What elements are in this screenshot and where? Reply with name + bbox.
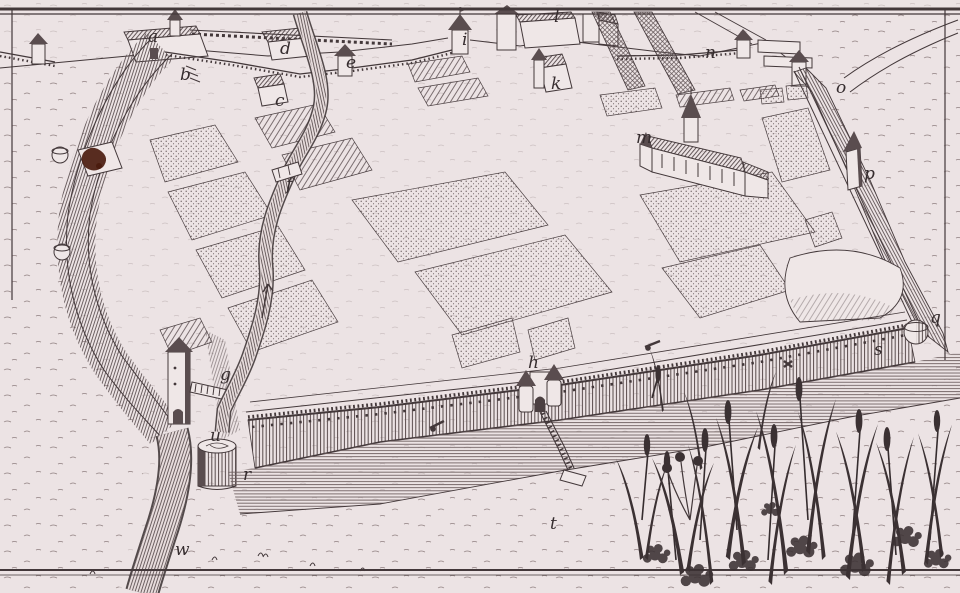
map-label-h: h xyxy=(528,353,539,373)
tall-watchtower xyxy=(165,337,193,424)
map-label-p: p xyxy=(864,164,875,184)
map-label-q: q xyxy=(930,308,941,328)
map-label-e: e xyxy=(346,53,356,73)
outwork-tower xyxy=(32,44,45,64)
map-label-l: l xyxy=(554,7,559,27)
engraving-page: abcdefghiklmnopqrstuw xyxy=(0,0,960,593)
map-label-r: r xyxy=(243,465,252,485)
map-label-a: a xyxy=(148,27,158,47)
map-label-i: i xyxy=(462,30,467,50)
birds-eye-map: abcdefghiklmnopqrstuw xyxy=(0,0,960,593)
map-label-t: t xyxy=(550,514,557,534)
map-label-w: w xyxy=(175,540,190,560)
west-bastion-tower xyxy=(52,147,68,163)
garden-plot xyxy=(786,84,808,100)
map-label-b: b xyxy=(180,65,191,85)
gatehouse-turret xyxy=(170,20,180,36)
corner-tower-q xyxy=(904,320,928,344)
map-label-k: k xyxy=(551,74,561,94)
map-label-s: s xyxy=(874,340,883,360)
map-label-m: m xyxy=(636,128,652,148)
church-tower xyxy=(684,116,698,142)
map-label-n: n xyxy=(705,43,716,63)
map-label-c: c xyxy=(275,91,285,111)
map-label-g: g xyxy=(220,365,231,385)
map-label-u: u xyxy=(210,426,221,446)
drum-tower-u xyxy=(198,439,236,490)
west-bastion-tower xyxy=(54,244,70,260)
map-label-o: o xyxy=(836,78,846,98)
dark-stain xyxy=(96,163,102,169)
map-label-d: d xyxy=(280,39,291,59)
